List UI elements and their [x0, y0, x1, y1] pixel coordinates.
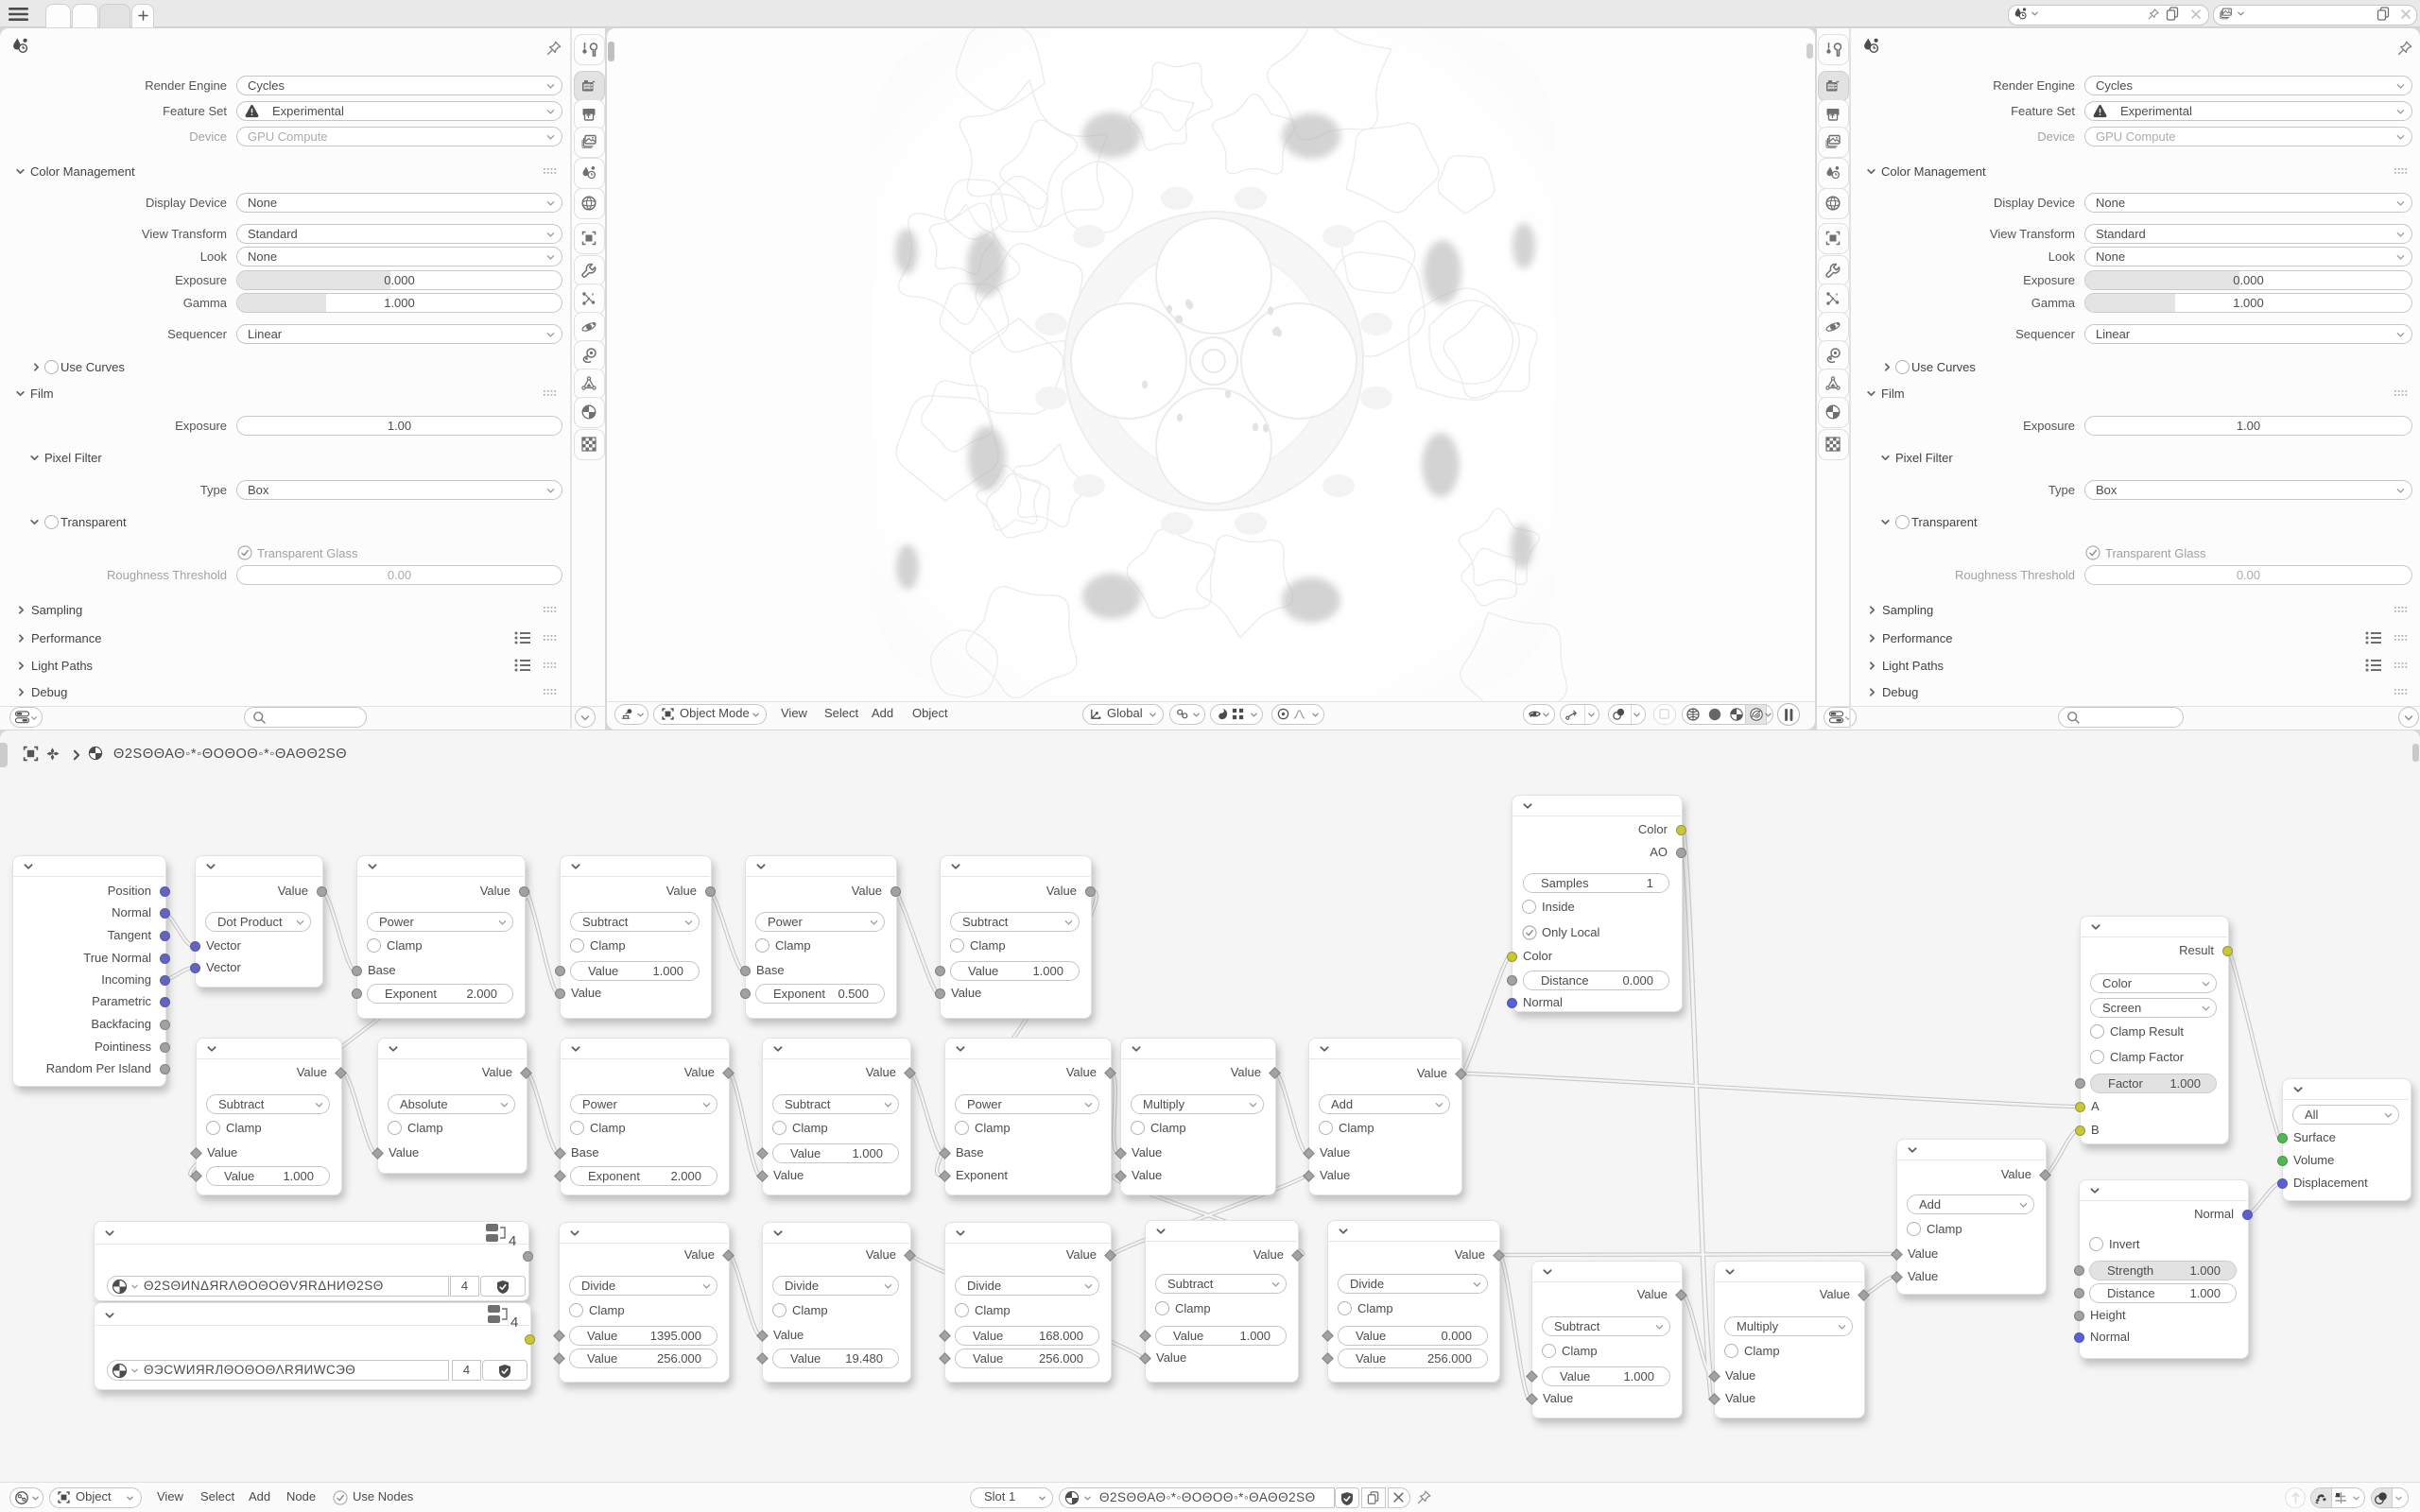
svg-text:4: 4 — [510, 1314, 518, 1329]
svg-text:4: 4 — [509, 1233, 516, 1247]
